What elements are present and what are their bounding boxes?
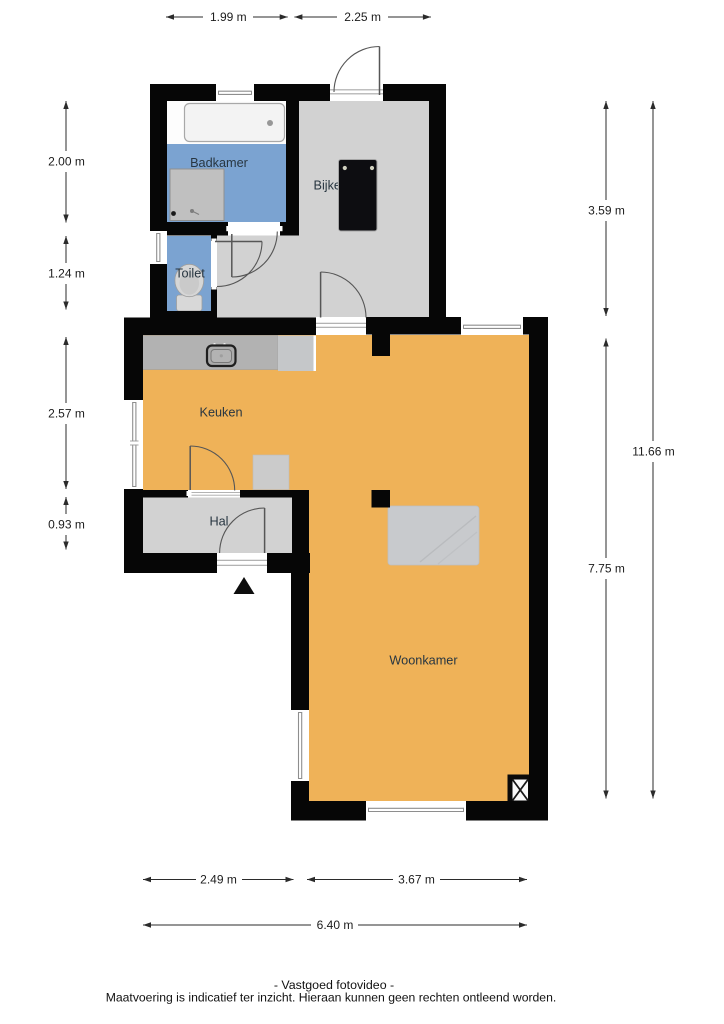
- svg-text:2.00 m: 2.00 m: [48, 155, 85, 169]
- svg-text:Keuken: Keuken: [199, 406, 242, 420]
- svg-text:3.67 m: 3.67 m: [398, 873, 435, 887]
- svg-text:2.57 m: 2.57 m: [48, 407, 85, 421]
- svg-text:7.75 m: 7.75 m: [588, 562, 625, 576]
- svg-text:6.40 m: 6.40 m: [317, 918, 354, 932]
- svg-text:Badkamer: Badkamer: [190, 156, 249, 170]
- svg-text:1.99 m: 1.99 m: [210, 10, 247, 24]
- svg-text:Woonkamer: Woonkamer: [389, 654, 458, 668]
- svg-text:2.49 m: 2.49 m: [200, 873, 237, 887]
- svg-text:1.24 m: 1.24 m: [48, 267, 85, 281]
- svg-text:3.59 m: 3.59 m: [588, 204, 625, 218]
- svg-text:Hal: Hal: [209, 515, 228, 529]
- svg-text:2.25 m: 2.25 m: [344, 10, 381, 24]
- svg-text:Maatvoering is indicatief ter: Maatvoering is indicatief ter inzicht. H…: [106, 991, 557, 1005]
- svg-text:0.93 m: 0.93 m: [48, 518, 85, 532]
- svg-text:11.66 m: 11.66 m: [632, 445, 674, 459]
- svg-text:Toilet: Toilet: [175, 267, 205, 281]
